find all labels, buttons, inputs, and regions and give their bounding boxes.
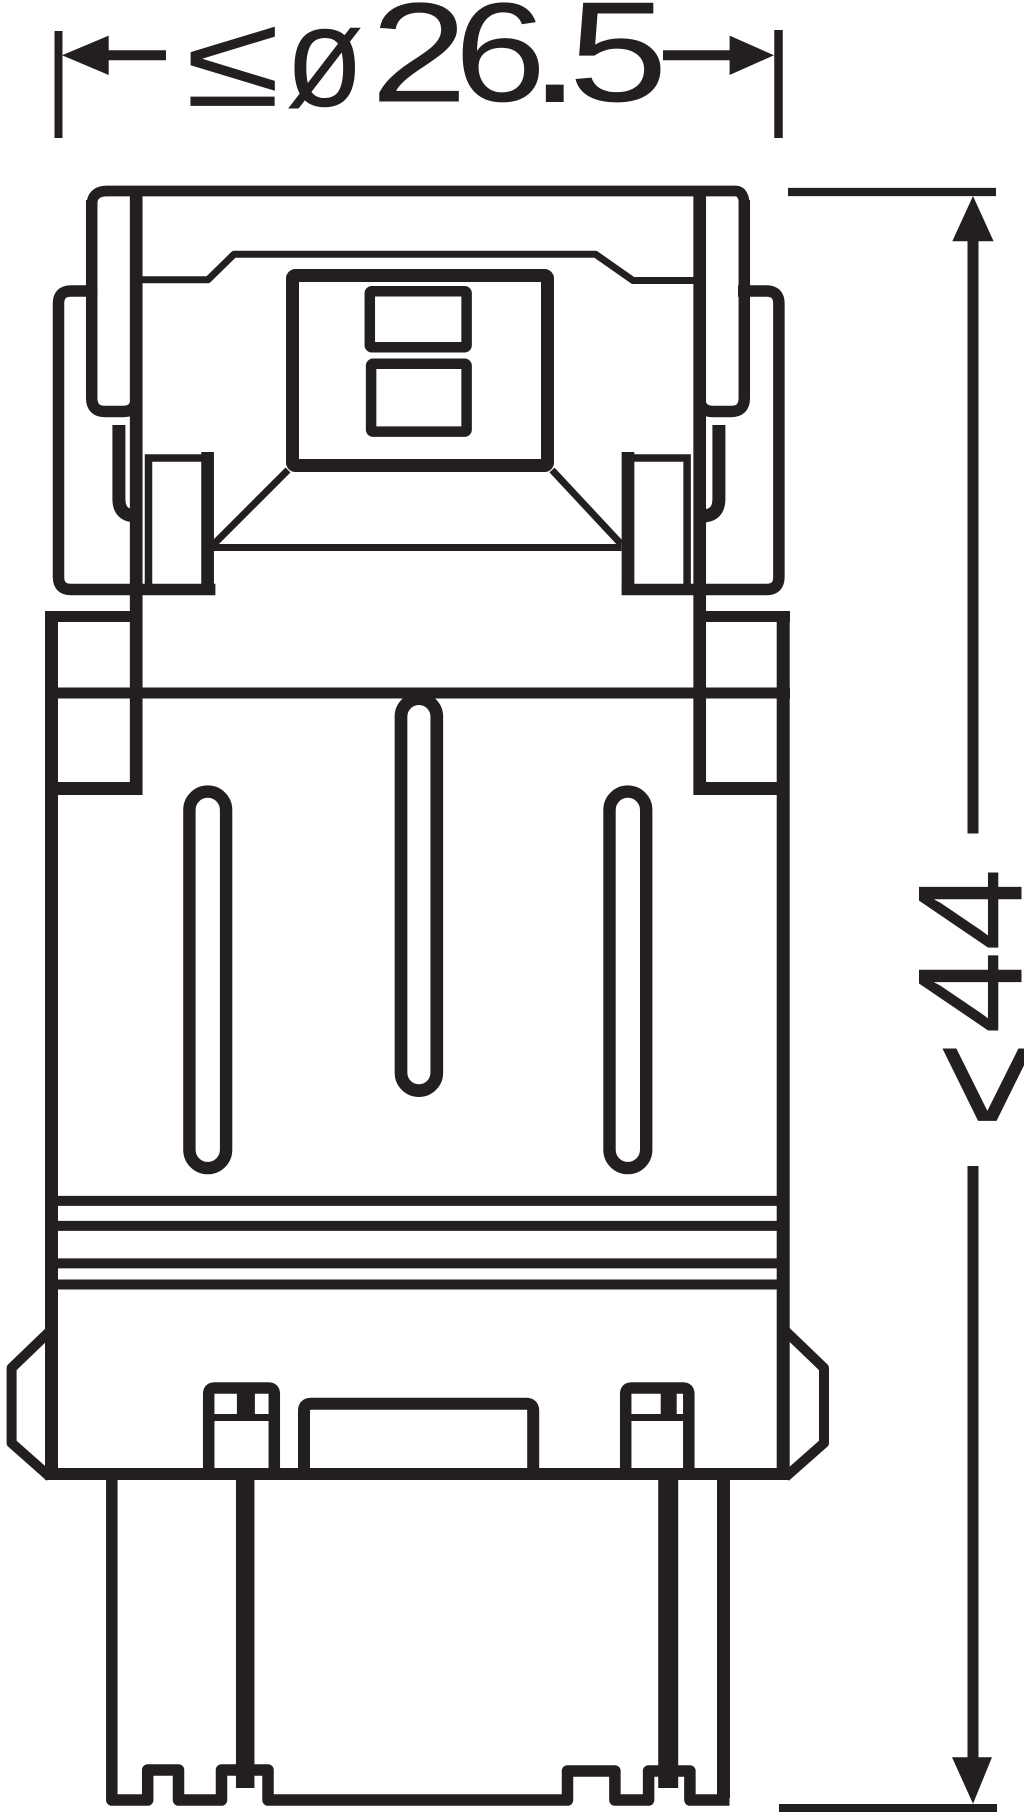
- svg-text:5: 5: [568, 0, 668, 132]
- svg-text:≤: ≤: [886, 1044, 1024, 1126]
- svg-text:2: 2: [370, 0, 467, 132]
- svg-text:44: 44: [887, 868, 1024, 1034]
- svg-text:≤: ≤: [185, 0, 280, 134]
- svg-text:ø: ø: [285, 0, 363, 136]
